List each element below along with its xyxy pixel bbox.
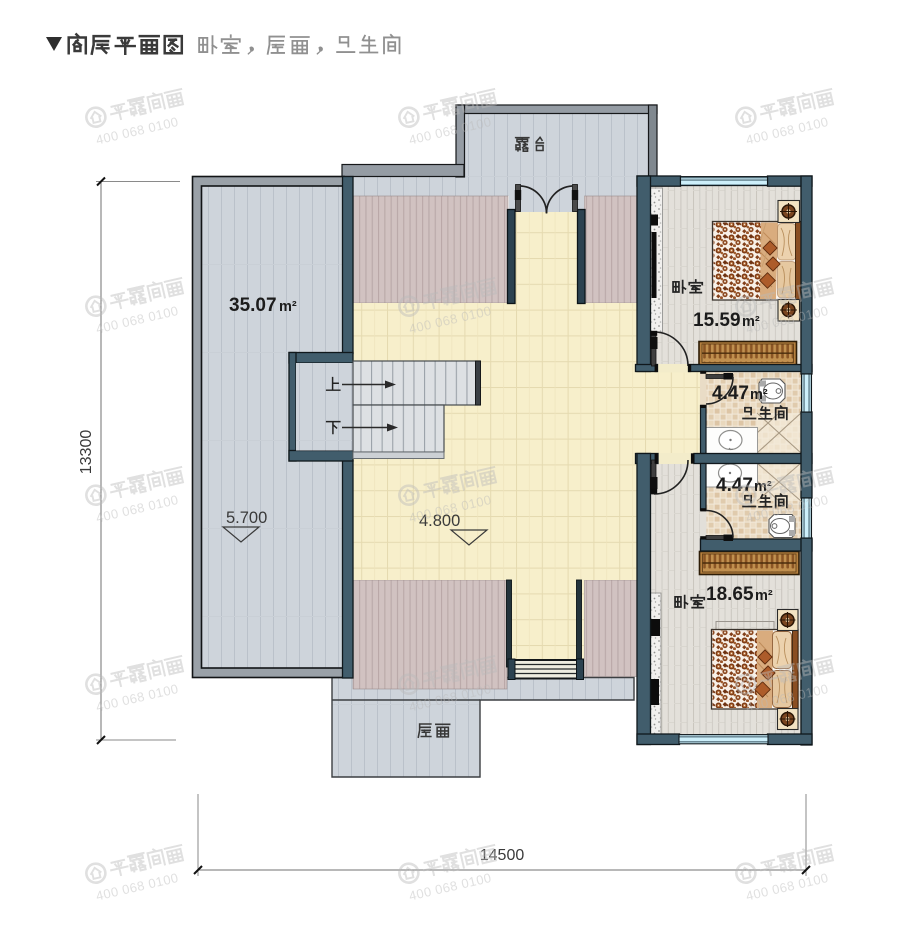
svg-text:15.59: 15.59: [693, 310, 741, 331]
svg-text:35.07: 35.07: [229, 295, 277, 316]
svg-text:m²: m²: [755, 588, 773, 604]
svg-text:13300: 13300: [78, 430, 95, 475]
svg-text:5.700: 5.700: [226, 509, 267, 527]
svg-text:4.47: 4.47: [712, 383, 749, 404]
svg-text:m²: m²: [279, 299, 297, 315]
svg-text:m²: m²: [750, 387, 768, 403]
svg-text:18.65: 18.65: [706, 584, 754, 605]
